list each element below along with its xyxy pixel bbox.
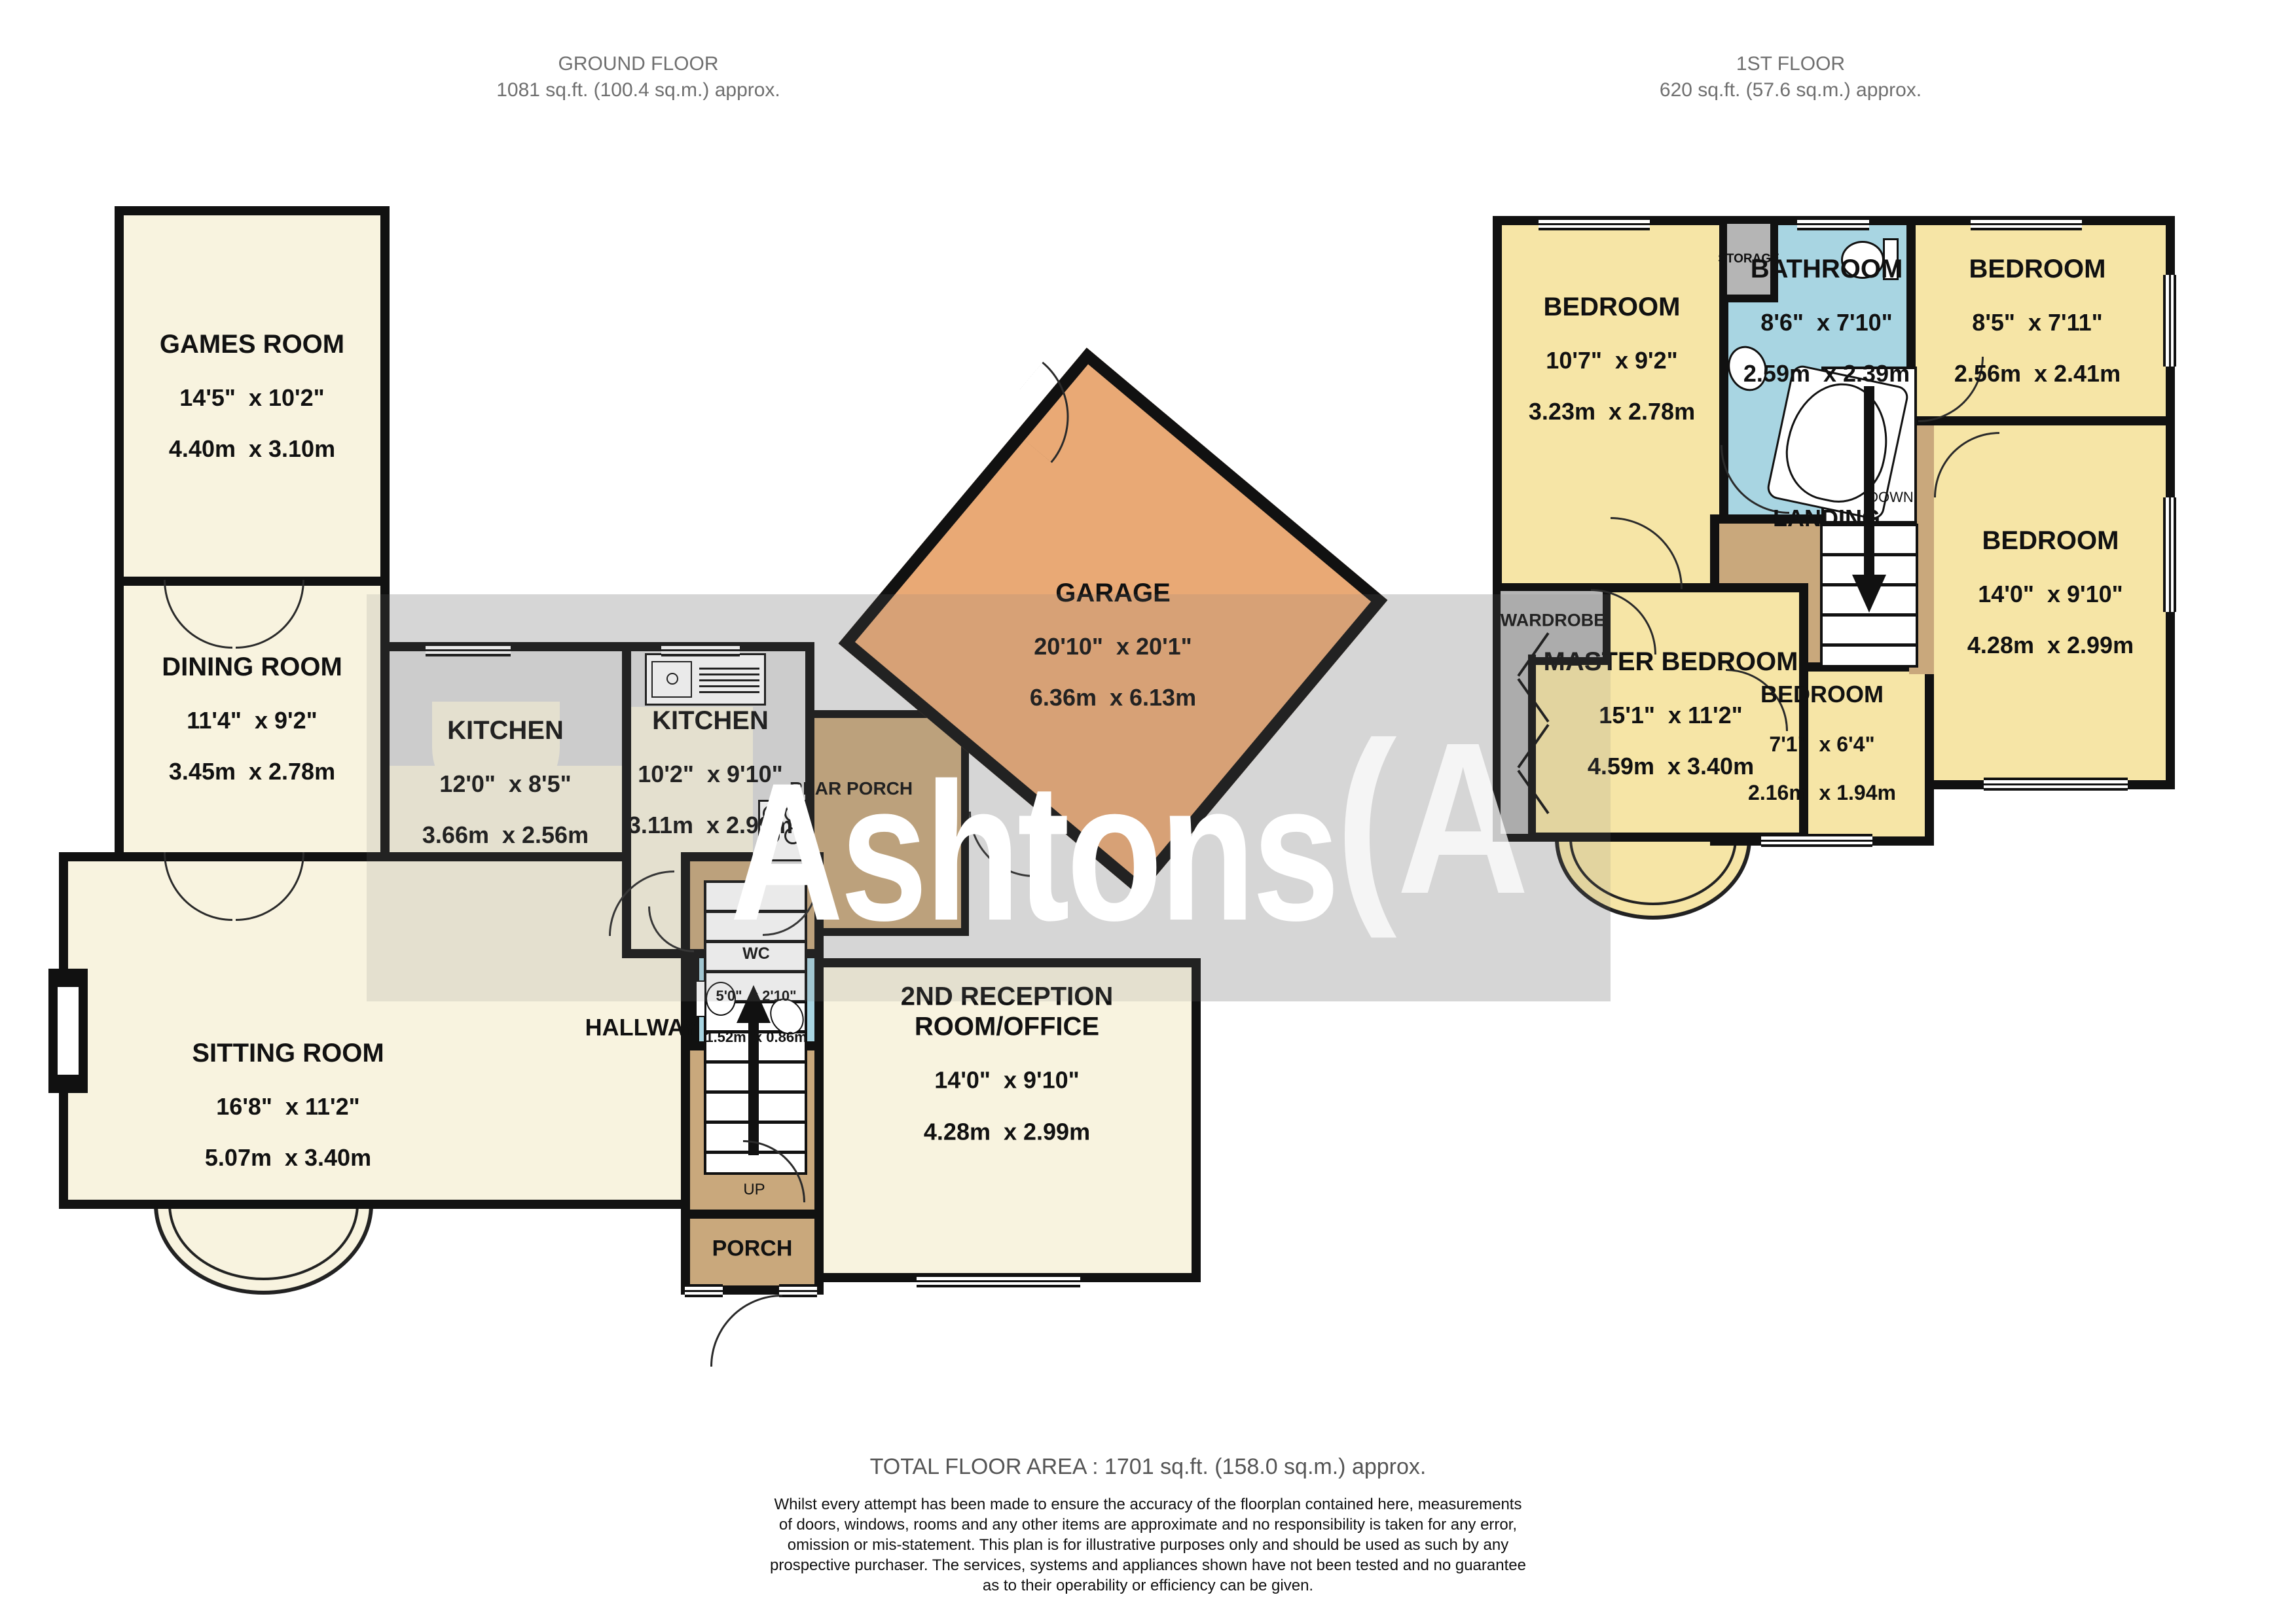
dining-room-label: DINING ROOM 11'4" x 9'2" 3.45m x 2.78m	[162, 628, 342, 810]
storage-label: STORAGE	[1718, 252, 1779, 266]
total-floor-area: TOTAL FLOOR AREA : 1701 sq.ft. (158.0 sq…	[0, 1454, 2296, 1480]
bedroom-small-label: BEDROOM 7'1" x 6'4" 2.16m x 1.94m	[1748, 656, 1896, 829]
door-arc	[710, 1295, 782, 1367]
window	[917, 1274, 1080, 1287]
porch-label: PORCH	[712, 1236, 793, 1262]
bedroom-top-right-label: BEDROOM 8'5" x 7'11" 2.56m x 2.41m	[1954, 230, 2121, 412]
room-dims-imperial: 10'7" x 9'2"	[1529, 346, 1695, 374]
window	[1539, 217, 1650, 230]
bedroom-right-label: BEDROOM 14'0" x 9'10" 4.28m x 2.99m	[1967, 501, 2134, 683]
ground-floor-header: GROUND FLOOR 1081 sq.ft. (100.4 sq.m.) a…	[344, 51, 933, 103]
room-dims-imperial: 7'1" x 6'4"	[1748, 732, 1896, 757]
room-name: BEDROOM	[1954, 254, 2121, 284]
room-dims-imperial: 14'5" x 10'2"	[160, 384, 344, 411]
window	[1797, 217, 1869, 230]
room-dims-imperial: 20'10" x 20'1"	[1030, 632, 1196, 660]
room-dims-imperial: 8'6" x 7'10"	[1743, 308, 1910, 336]
window	[779, 1284, 817, 1297]
bedroom-front-label: BEDROOM 10'7" x 9'2" 3.23m x 2.78m	[1529, 268, 1695, 450]
footer: TOTAL FLOOR AREA : 1701 sq.ft. (158.0 sq…	[0, 1454, 2296, 1597]
window	[2163, 497, 2176, 612]
room-dims-imperial: 12'0" x 8'5"	[422, 770, 589, 797]
watermark-logo: (A	[1336, 694, 1529, 942]
room-name: KITCHEN	[628, 706, 793, 736]
first-floor-title: 1ST FLOOR	[1496, 51, 2085, 77]
room-dims-metric: 6.36m x 6.13m	[1030, 684, 1196, 711]
kitchen-a-label: KITCHEN 12'0" x 8'5" 3.66m x 2.56m	[422, 691, 589, 873]
room-name: GAMES ROOM	[160, 329, 344, 359]
bay-window-sitting	[154, 1203, 373, 1295]
disclaimer-line: prospective purchaser. The services, sys…	[0, 1555, 2296, 1575]
sitting-room-label: SITTING ROOM 16'8" x 11'2" 5.07m x 3.40m	[192, 1014, 384, 1196]
garage-label: GARAGE 20'10" x 20'1" 6.36m x 6.13m	[1030, 554, 1196, 736]
first-floor-header: 1ST FLOOR 620 sq.ft. (57.6 sq.m.) approx…	[1496, 51, 2085, 103]
wardrobe-label: WARDROBE	[1501, 611, 1606, 631]
landing-label: LANDING	[1773, 505, 1880, 532]
second-reception-label: 2ND RECEPTION ROOM/OFFICE 14'0" x 9'10" …	[901, 958, 1114, 1170]
ground-floor-area: 1081 sq.ft. (100.4 sq.m.) approx.	[344, 77, 933, 103]
room-name: SITTING ROOM	[192, 1038, 384, 1068]
room-name: BEDROOM	[1967, 526, 2134, 556]
room-dims-metric: 2.56m x 2.41m	[1954, 360, 2121, 387]
room-dims-metric: 3.23m x 2.78m	[1529, 398, 1695, 425]
floorplan-page: GROUND FLOOR 1081 sq.ft. (100.4 sq.m.) a…	[0, 0, 2296, 1597]
room-dims-metric: 5.07m x 3.40m	[192, 1144, 384, 1172]
room-name: DINING ROOM	[162, 652, 342, 682]
room-dims-imperial: 8'5" x 7'11"	[1954, 308, 2121, 336]
room-name: BEDROOM	[1529, 292, 1695, 322]
stairs-down-arrow	[1864, 386, 1874, 576]
room-dims-imperial: 14'0" x 9'10"	[1967, 580, 2134, 607]
games-room-label: GAMES ROOM 14'5" x 10'2" 4.40m x 3.10m	[160, 305, 344, 487]
disclaimer-line: Whilst every attempt has been made to en…	[0, 1494, 2296, 1515]
ground-floor-title: GROUND FLOOR	[344, 51, 933, 77]
up-label: UP	[743, 1181, 765, 1199]
disclaimer-line: of doors, windows, rooms and any other i…	[0, 1515, 2296, 1535]
room-name: KITCHEN	[422, 715, 589, 745]
window	[685, 1284, 723, 1297]
room-name: BEDROOM	[1748, 681, 1896, 708]
window	[1971, 217, 2082, 230]
toilet-icon	[695, 980, 706, 1017]
room-dims-metric: 1.52m x 0.86m	[705, 1029, 807, 1046]
room-dims-imperial: 14'0" x 9'10"	[901, 1067, 1114, 1094]
window	[1761, 834, 1872, 847]
window	[1984, 778, 2128, 791]
room-dims-metric: 4.28m x 2.99m	[1967, 632, 2134, 659]
room-dims-metric: 2.59m x 2.39m	[1743, 360, 1910, 387]
window	[426, 643, 511, 656]
room-dims-metric: 4.28m x 2.99m	[901, 1118, 1114, 1145]
disclaimer-line: as to their operability or efficiency ca…	[0, 1575, 2296, 1596]
disclaimer-line: omission or mis-statement. This plan is …	[0, 1535, 2296, 1555]
watermark-text: Ashtons	[730, 738, 1336, 965]
room-dims-metric: 3.66m x 2.56m	[422, 821, 589, 849]
down-label: DOWN	[1868, 489, 1914, 506]
room-dims-metric: 3.45m x 2.78m	[162, 758, 342, 785]
hallway-label: HALLWAY	[585, 1014, 699, 1041]
room-dims-imperial: 11'4" x 9'2"	[162, 706, 342, 734]
first-floor-area: 620 sq.ft. (57.6 sq.m.) approx.	[1496, 77, 2085, 103]
room-dims-metric: 4.40m x 3.10m	[160, 435, 344, 463]
chimney-breast	[48, 969, 88, 1093]
room-dims-imperial: 5'0" x 2'10"	[705, 988, 807, 1005]
room-name: 2ND RECEPTION ROOM/OFFICE	[901, 982, 1114, 1043]
room-dims-metric: 2.16m x 1.94m	[1748, 781, 1896, 805]
window	[2163, 275, 2176, 367]
window	[661, 643, 740, 656]
room-name: GARAGE	[1030, 578, 1196, 608]
room-dims-imperial: 16'8" x 11'2"	[192, 1092, 384, 1120]
